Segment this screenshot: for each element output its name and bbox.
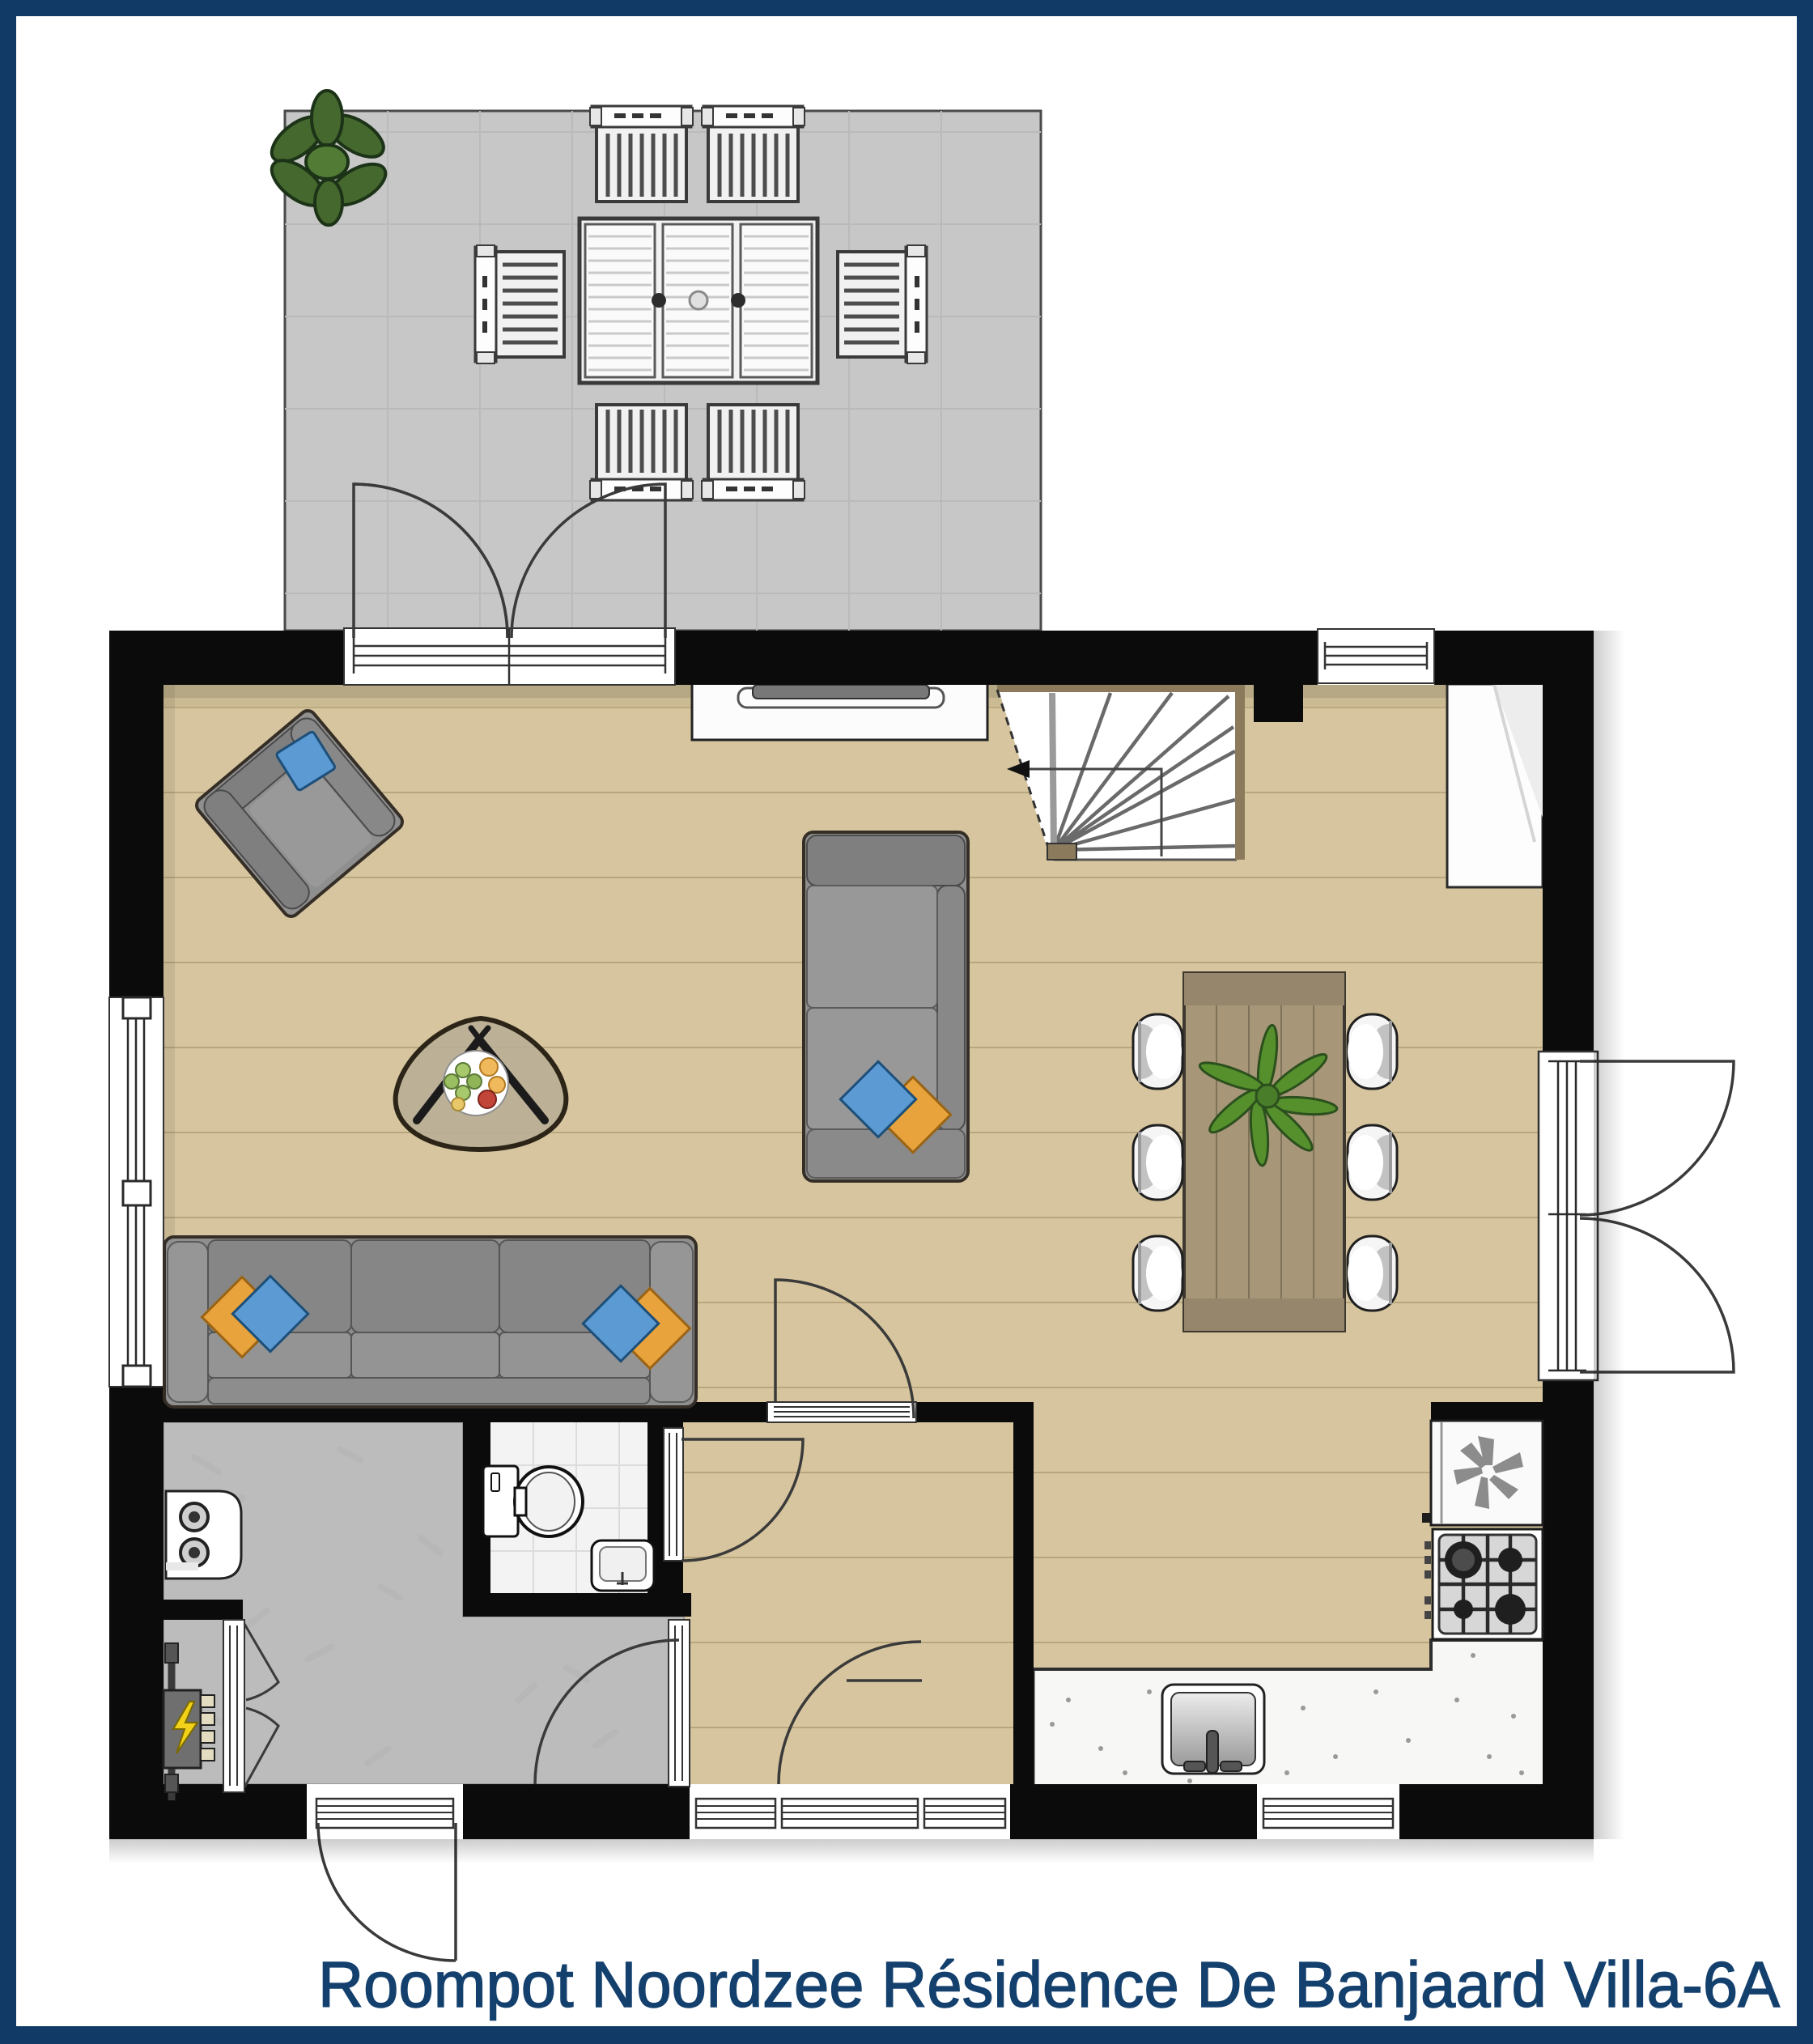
- svg-text:Roompot Noordzee Résidence De: Roompot Noordzee Résidence De Banjaard V…: [318, 1948, 1781, 2021]
